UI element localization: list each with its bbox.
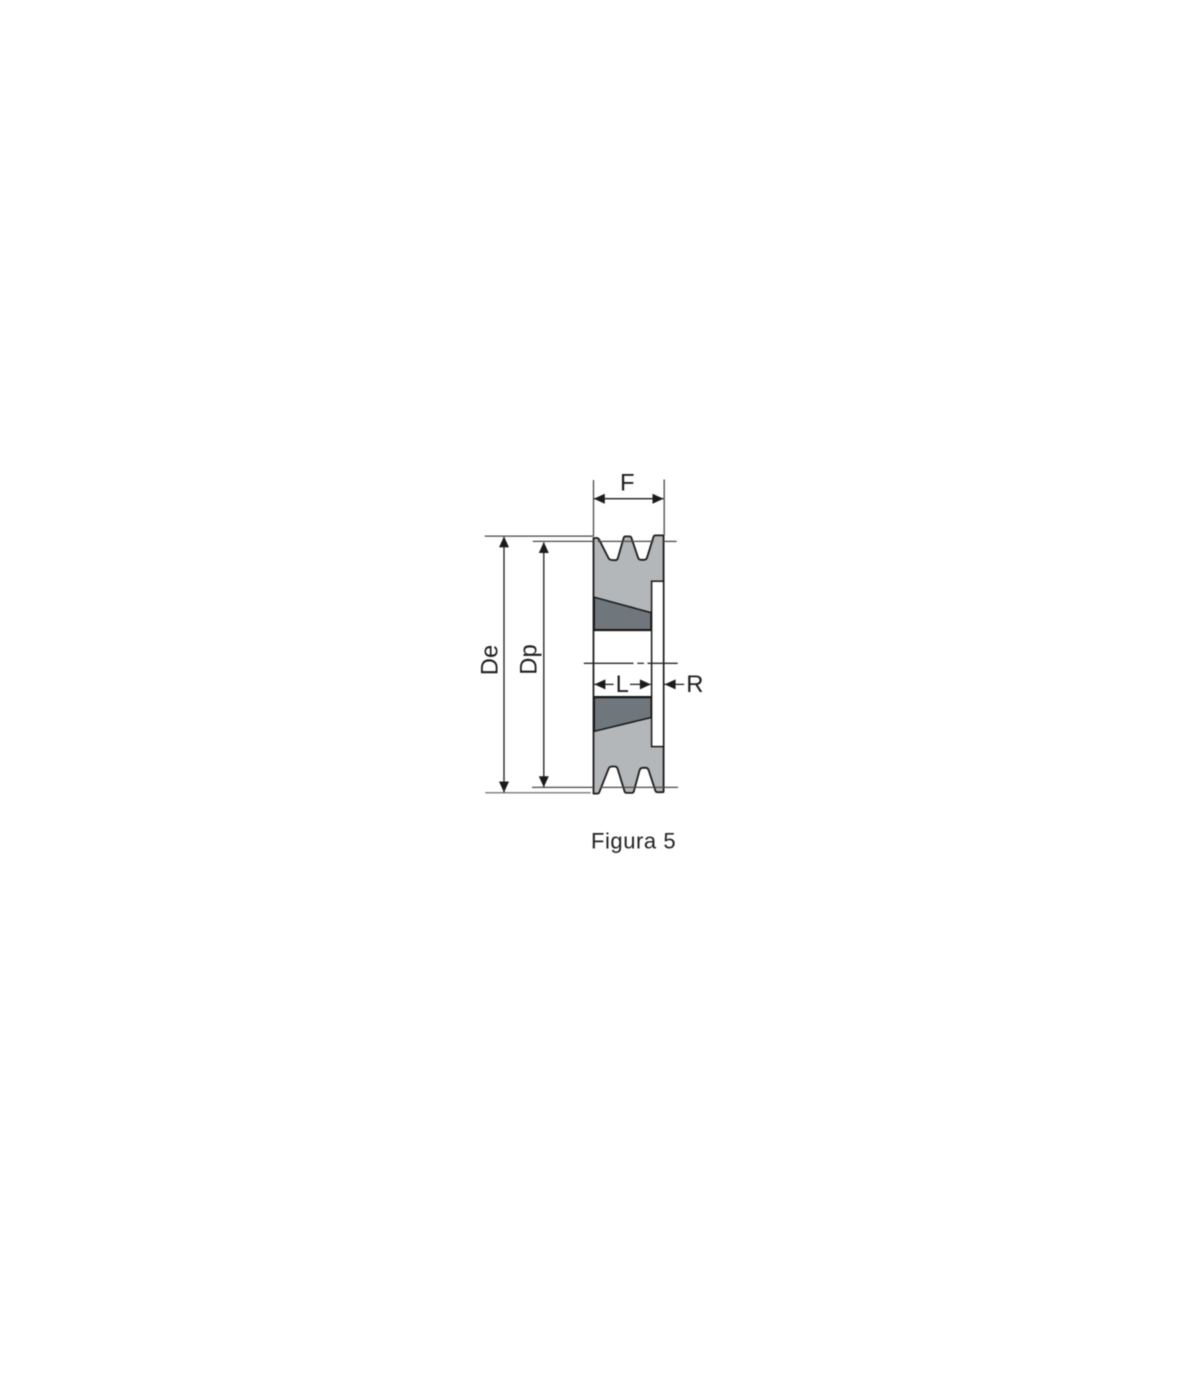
svg-text:Dp: Dp xyxy=(516,644,543,674)
svg-text:F: F xyxy=(620,469,635,496)
svg-text:R: R xyxy=(686,671,703,698)
svg-text:L: L xyxy=(616,671,629,698)
svg-text:Figura 5: Figura 5 xyxy=(591,829,676,854)
svg-text:De: De xyxy=(476,645,503,675)
